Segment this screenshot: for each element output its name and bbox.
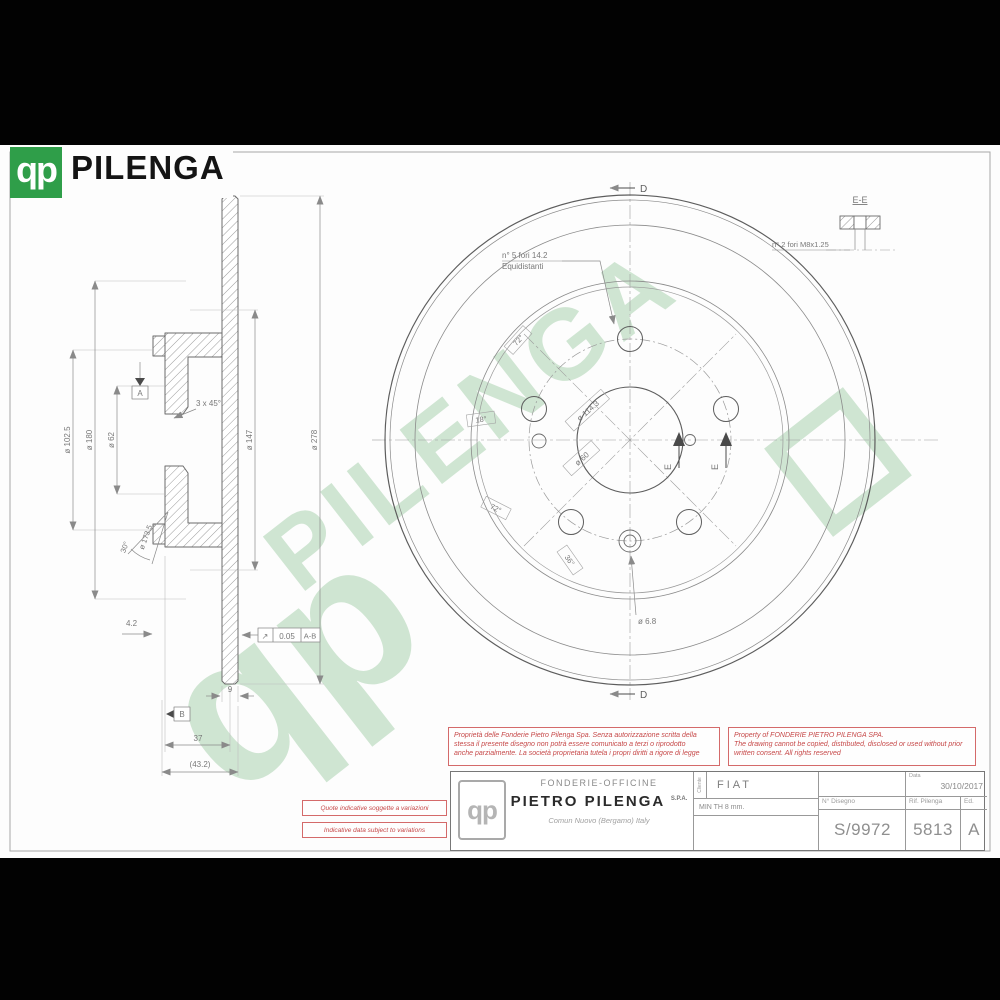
brand-name: PILENGA [71, 149, 225, 187]
svg-text:D: D [640, 690, 647, 701]
angle-label-3: 72° [481, 496, 511, 519]
company-line1: FONDERIE-OFFICINE [509, 778, 689, 788]
date-cell: Data 30/10/2017 [906, 772, 987, 797]
brand-header: qp PILENGA [10, 147, 233, 198]
runout-value: 0.05 [279, 632, 295, 641]
client-value: FIAT [707, 772, 818, 798]
dim-drum-inner-diameter: ø 147 [245, 429, 254, 450]
section-hat-lower [165, 466, 222, 547]
section-d-bottom: D [610, 690, 647, 701]
section-disc-band [222, 196, 238, 684]
dim-hub-diameter: ø 102.5 [63, 426, 72, 454]
warning-italian-line2: stessa il presente disegno non potrà ess… [454, 740, 714, 749]
date-label: Data [906, 772, 987, 779]
section-boss-upper [153, 336, 165, 356]
dim-drum-surface: ø 173.5 [137, 524, 154, 551]
svg-text:ø 6.8: ø 6.8 [638, 617, 657, 626]
date-ref-column: Data 30/10/2017 Rif. Pilenga Ed. 5813 A [905, 772, 986, 850]
warning-italian: Proprietà delle Fonderie Pietro Pilenga … [448, 727, 720, 766]
title-block-company: qp FONDERIE-OFFICINE PIETRO PILENGA S.P.… [451, 772, 693, 850]
empty-cell-top [819, 772, 906, 797]
dim-drum-outer-diameter: ø 180 [85, 429, 94, 450]
dim-depth: 4.2 [126, 619, 138, 628]
drawing-no-label: N° Disegno [819, 797, 906, 810]
stud-holes-note-line2: Equidistanti [502, 262, 544, 271]
svg-text:ø 60: ø 60 [573, 450, 591, 468]
datum-a-label: A [137, 389, 143, 398]
datum-a-flag: A [132, 362, 148, 399]
warning-english-line3: written consent. All rights reserved [734, 749, 970, 758]
warning-english-line1: Property of FONDERIE PIETRO PILENGA SPA. [734, 731, 970, 740]
detail-ee-note: n° 2 fori M8x1.25 [772, 240, 829, 249]
warning-english: Property of FONDERIE PIETRO PILENGA SPA.… [728, 727, 976, 766]
note-italian: Quote indicative soggette a variazioni [302, 800, 447, 816]
note-english: Indicative data subject to variations [302, 822, 447, 838]
center-bore-label: ø 60 [563, 441, 600, 476]
company-suffix: S.P.A. [671, 796, 688, 802]
svg-text:D: D [640, 184, 647, 195]
drawing-no-value: S/9972 [819, 810, 906, 850]
section-d-top: D [610, 184, 647, 195]
title-block-logo-icon: qp [458, 780, 506, 840]
svg-text:E: E [710, 464, 720, 470]
empty-cell [693, 816, 818, 850]
warning-italian-line1: Proprietà delle Fonderie Pietro Pilenga … [454, 731, 714, 740]
ref-label: Rif. Pilenga [906, 797, 960, 810]
min-thickness: MIN TH 8 mm. [693, 799, 818, 816]
company-address: Comun Nuovo (Bergamo) Italy [509, 816, 689, 825]
svg-text:E: E [663, 464, 673, 470]
warning-english-line2: The drawing cannot be copied, distribute… [734, 740, 970, 749]
company-name: PIETRO PILENGA [511, 793, 665, 810]
pilenga-logo-icon: qp [10, 147, 62, 198]
dim-chamfer: 3 x 45° [196, 399, 221, 408]
datum-b-label: B [179, 710, 184, 719]
runout-datums: A-B [304, 632, 317, 641]
svg-text:36°: 36° [563, 553, 577, 567]
dim-height: 37 [194, 734, 203, 743]
detail-ee: E-E n° 2 fori M8x1.25 [772, 195, 896, 250]
dim-thickness: 9 [228, 685, 233, 694]
page: qp PILENGA [0, 0, 1000, 1000]
drawing-no-column: N° Disegno S/9972 [818, 772, 905, 850]
watermark-text: PILENGA [245, 225, 697, 613]
detail-ee-title: E-E [852, 195, 867, 205]
warning-italian-line3: anche parzialmente. La società proprieta… [454, 749, 714, 758]
dim-overall-width: (43.2) [190, 760, 211, 769]
watermark-block [775, 398, 900, 525]
runout-symbol: ↗ [262, 632, 269, 641]
title-block: qp FONDERIE-OFFICINE PIETRO PILENGA S.P.… [450, 771, 985, 851]
section-e-arrow-2: E [710, 432, 732, 470]
dim-bore-diameter: ø 62 [107, 431, 116, 448]
stud-holes-note-line1: n° 5 fori 14.2 [502, 251, 548, 260]
dim-outer-diameter: ø 278 [310, 429, 319, 450]
date-value: 30/10/2017 [906, 779, 987, 791]
ref-value: 5813 [906, 810, 960, 850]
svg-text:18°: 18° [475, 414, 487, 424]
client-label: Cliente [697, 777, 703, 793]
angle-label-4: 36° [557, 545, 583, 575]
edition-label: Ed. [960, 797, 987, 810]
client-row: Cliente FIAT [693, 772, 818, 799]
edition-value: A [960, 810, 987, 850]
dim-drum-angle: 30° [118, 540, 130, 554]
